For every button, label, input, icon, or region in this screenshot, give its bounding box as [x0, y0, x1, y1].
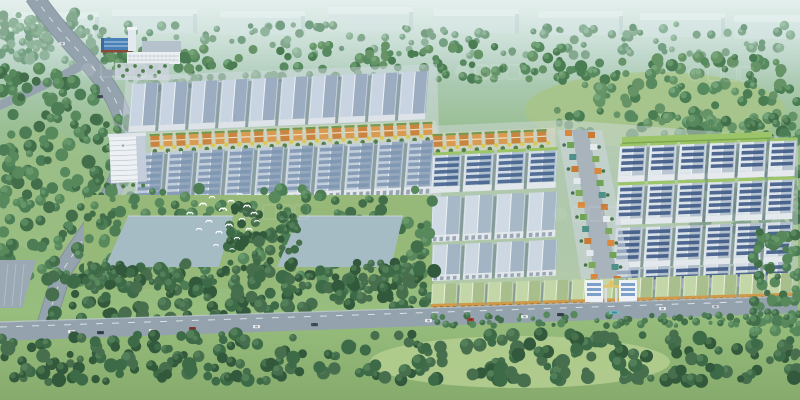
factory-tower-cap [127, 27, 137, 30]
tree [381, 41, 390, 50]
tree [269, 191, 281, 203]
tree-highlight [451, 323, 454, 326]
watermark-mark [553, 207, 567, 221]
tree-highlight [732, 88, 736, 92]
spine-building [588, 132, 595, 138]
tree [313, 361, 325, 373]
spine-tree [602, 169, 606, 173]
tree-highlight [750, 315, 756, 321]
tree-highlight [122, 352, 130, 360]
tree [439, 314, 445, 320]
tree-highlight [481, 67, 486, 72]
loading-door [396, 190, 400, 195]
bird [219, 208, 226, 210]
tree-highlight [660, 374, 668, 382]
car [521, 315, 528, 318]
tree [115, 264, 127, 276]
tree-highlight [310, 274, 313, 277]
tree [15, 12, 21, 18]
tree [378, 195, 388, 205]
tree-highlight [179, 301, 185, 307]
tree-highlight [435, 319, 438, 322]
tree [67, 275, 81, 289]
tree [339, 46, 344, 51]
bird [239, 218, 244, 220]
tree-highlight [54, 236, 59, 241]
distant-roof [328, 7, 413, 14]
tree-highlight [571, 332, 579, 340]
tree [129, 193, 140, 204]
tree [248, 23, 254, 29]
tree [781, 297, 791, 307]
tree [407, 330, 416, 339]
tree-highlight [434, 59, 439, 64]
spine-tree [571, 191, 575, 195]
tree-highlight [393, 265, 399, 271]
tree [102, 309, 111, 318]
tree-highlight [233, 266, 238, 271]
tree-highlight [380, 283, 385, 288]
spine-building [605, 228, 612, 234]
tree [675, 365, 686, 376]
warehouse-wall [128, 125, 155, 132]
tree-highlight [773, 120, 777, 124]
tree-highlight [38, 265, 43, 270]
tree-highlight [273, 366, 279, 372]
tree [508, 47, 516, 55]
tree-highlight [480, 320, 483, 323]
tree-highlight [653, 38, 656, 41]
tree-highlight [750, 309, 754, 313]
loading-door [484, 235, 488, 239]
tree-highlight [227, 342, 232, 347]
tree-highlight [250, 30, 253, 33]
tree-highlight [91, 202, 96, 207]
tree-highlight [660, 69, 663, 72]
spine-building [612, 264, 619, 270]
loading-door [478, 275, 482, 279]
tree [558, 28, 563, 33]
tree-highlight [18, 357, 23, 362]
tree-highlight [54, 78, 60, 84]
tree-highlight [83, 187, 89, 193]
warehouse-row [431, 240, 558, 282]
spine-building [584, 238, 591, 244]
tree-highlight [584, 28, 589, 33]
tree-highlight [400, 34, 403, 37]
tree [629, 24, 636, 31]
tree [24, 54, 35, 65]
car-window [255, 326, 258, 328]
tree [421, 38, 429, 46]
tree-highlight [648, 375, 652, 379]
tree-highlight [59, 89, 64, 94]
tree [434, 341, 447, 354]
tree-highlight [378, 260, 382, 264]
spine-building [574, 178, 581, 184]
bird [209, 196, 214, 198]
tree-highlight [716, 312, 720, 316]
tree-highlight [19, 49, 24, 54]
tree [249, 45, 258, 54]
distant-roof [220, 11, 305, 18]
tree-highlight [784, 315, 787, 318]
tree [316, 23, 325, 32]
tree [577, 68, 586, 77]
loading-door [452, 236, 456, 240]
spine-tree [614, 241, 618, 245]
loading-door [465, 275, 469, 279]
loading-door [419, 189, 423, 194]
tree [74, 89, 86, 101]
tree-highlight [558, 44, 563, 49]
spine-building [586, 250, 593, 256]
tree [36, 241, 47, 252]
bird [214, 244, 219, 245]
spine-building [597, 180, 604, 186]
tree-highlight [475, 29, 480, 34]
tree-highlight [245, 231, 249, 235]
tree-highlight [217, 269, 222, 274]
tree [178, 52, 190, 64]
tree-highlight [535, 42, 541, 48]
tree-highlight [43, 78, 48, 83]
tree-highlight [778, 341, 785, 348]
tree [99, 27, 107, 35]
tree-highlight [236, 360, 241, 365]
tree-highlight [771, 326, 777, 332]
tree [648, 110, 658, 120]
loading-door [510, 273, 514, 277]
loading-door [453, 276, 457, 280]
distant-side [193, 14, 197, 33]
tree-highlight [644, 119, 649, 124]
factory-blue-roof [101, 38, 132, 50]
tree-highlight [679, 83, 683, 87]
tree [265, 288, 276, 299]
tree-highlight [276, 184, 283, 191]
tree-highlight [6, 175, 12, 181]
tree [488, 315, 493, 320]
warehouse-wall [735, 214, 762, 221]
tree [603, 322, 610, 329]
tree-highlight [102, 262, 107, 267]
tree [277, 235, 284, 242]
tree [765, 264, 775, 274]
tree-highlight [36, 216, 42, 222]
tree-highlight [507, 329, 514, 336]
tree [557, 320, 565, 328]
tree-highlight [531, 316, 533, 318]
tree [328, 362, 340, 374]
tree [92, 24, 98, 30]
tree-highlight [712, 52, 719, 59]
tree-highlight [669, 47, 672, 50]
tree-highlight [680, 92, 687, 99]
tree-highlight [71, 121, 76, 126]
spine-building [571, 166, 578, 172]
tree-highlight [674, 324, 676, 326]
tree-highlight [100, 235, 106, 241]
tree [370, 331, 379, 340]
spine-building [576, 190, 583, 196]
tree-highlight [721, 318, 724, 321]
tree-highlight [399, 299, 405, 305]
tree [734, 322, 740, 328]
tree-highlight [266, 245, 272, 251]
distant-wall [328, 12, 413, 31]
tree [469, 321, 476, 328]
tree [411, 240, 424, 253]
tree-highlight [790, 230, 796, 236]
tree-highlight [373, 372, 378, 377]
spine-building [607, 240, 614, 246]
tree-highlight [595, 318, 598, 321]
warehouse-wall [338, 116, 365, 123]
gate-pylon [605, 288, 608, 302]
tree-highlight [191, 200, 195, 204]
warehouse-wall [643, 260, 670, 267]
warehouse-row [430, 192, 558, 243]
tree-highlight [679, 53, 684, 58]
tree [305, 20, 314, 29]
tree [419, 299, 427, 307]
factory-tower [128, 29, 136, 51]
tree-highlight [193, 336, 198, 341]
tree-highlight [77, 356, 81, 360]
tree-highlight [788, 250, 792, 254]
tree-highlight [443, 72, 447, 76]
tree [358, 273, 368, 283]
tree-highlight [666, 336, 671, 341]
tree [756, 228, 764, 236]
tree-highlight [171, 201, 176, 206]
tree-highlight [69, 302, 73, 306]
tree-highlight [747, 370, 752, 375]
tree-highlight [325, 352, 329, 356]
tree-highlight [200, 45, 205, 50]
tree-highlight [491, 67, 497, 73]
tree [759, 39, 765, 45]
tree-highlight [608, 31, 613, 36]
warehouse-wall [765, 213, 792, 220]
tree [276, 225, 284, 233]
tree [173, 63, 183, 73]
tree [554, 107, 561, 114]
tree [231, 203, 240, 212]
tree [128, 359, 138, 369]
tree [131, 203, 138, 210]
tree-highlight [774, 237, 779, 242]
loading-door [439, 237, 443, 241]
tree-highlight [758, 123, 762, 127]
tree-highlight [88, 34, 91, 37]
tree-highlight [252, 251, 255, 254]
tree-highlight [173, 354, 179, 360]
tree [285, 274, 295, 284]
tree [639, 331, 647, 339]
gate-dome [608, 280, 614, 286]
tree-highlight [346, 33, 350, 37]
warehouse-wall [673, 259, 700, 266]
tree [581, 50, 590, 59]
tree [19, 126, 32, 139]
tree [368, 267, 375, 274]
tree-highlight [608, 84, 613, 89]
tree-highlight [108, 336, 115, 343]
tree-highlight [52, 69, 56, 73]
tree [19, 72, 29, 82]
tree [711, 101, 719, 109]
tree [110, 342, 120, 352]
tree [495, 315, 501, 321]
distant-roof [734, 15, 800, 22]
tree-highlight [64, 104, 69, 109]
tree-highlight [344, 299, 350, 305]
tree [45, 287, 59, 301]
tree [66, 210, 78, 222]
warehouse-wall [767, 170, 794, 177]
tree-highlight [288, 258, 294, 264]
tree-highlight [215, 202, 221, 208]
tree [52, 373, 66, 387]
tree-highlight [214, 345, 221, 352]
tree-highlight [482, 31, 487, 36]
tree-highlight [253, 339, 259, 345]
car [557, 313, 564, 316]
tree-highlight [553, 48, 557, 52]
tree-highlight [242, 374, 250, 382]
spine-building [565, 130, 572, 136]
tree [388, 57, 396, 65]
tree-highlight [19, 39, 23, 43]
car [97, 331, 104, 334]
tree [203, 279, 212, 288]
warehouse-wall [703, 258, 730, 265]
loading-door [503, 234, 507, 238]
tree [512, 348, 525, 361]
tree [219, 336, 228, 345]
tree-highlight [21, 364, 28, 371]
gate-glass [621, 288, 635, 291]
tree-highlight [10, 373, 16, 379]
tree-highlight [474, 339, 481, 346]
tree-highlight [792, 286, 796, 290]
gate-glass [621, 283, 635, 286]
car-window [469, 319, 472, 321]
warehouse-wall [308, 117, 335, 124]
distant-roof [434, 9, 519, 16]
loading-door [426, 189, 430, 194]
tree [614, 340, 622, 348]
warehouse-wall [677, 173, 704, 180]
tree-highlight [705, 338, 712, 345]
car [120, 144, 126, 147]
tree [744, 41, 750, 47]
tree-highlight [1, 186, 8, 193]
tree-highlight [764, 315, 769, 320]
tree [365, 49, 374, 58]
tree [366, 295, 373, 302]
tree-highlight [47, 114, 52, 119]
tree-highlight [34, 63, 41, 70]
tree [586, 352, 596, 362]
tree-highlight [294, 226, 298, 230]
tree-highlight [534, 347, 540, 353]
tree [55, 148, 68, 161]
loading-door [446, 236, 450, 240]
loading-door [472, 275, 476, 279]
car-window [427, 320, 430, 322]
tree-highlight [732, 344, 738, 350]
tree [705, 363, 715, 373]
tree-highlight [414, 276, 418, 280]
tree-highlight [738, 97, 743, 102]
plaza-tree [163, 64, 167, 68]
warehouse-wall [278, 118, 305, 125]
tree-highlight [554, 60, 561, 67]
tree-highlight [708, 31, 713, 36]
tree [60, 167, 70, 177]
tree-highlight [27, 200, 32, 205]
tree-highlight [55, 194, 61, 200]
tree-highlight [728, 321, 732, 325]
tree [193, 183, 204, 194]
tree [439, 38, 448, 47]
tree [86, 37, 97, 48]
distant-roof [112, 9, 197, 16]
tree-highlight [670, 76, 675, 81]
tree [206, 206, 215, 215]
tree [237, 36, 245, 44]
tree-highlight [785, 365, 791, 371]
tree-highlight [265, 267, 271, 273]
car [311, 323, 318, 326]
tree [758, 89, 765, 96]
tree-highlight [693, 318, 697, 322]
tree [253, 236, 265, 248]
tree [173, 34, 179, 40]
car [659, 307, 666, 310]
tree-highlight [189, 49, 195, 55]
tree [275, 21, 285, 31]
tree [276, 47, 284, 55]
car [97, 95, 103, 98]
tree [421, 343, 431, 353]
tree-highlight [159, 298, 167, 306]
spine-tree [606, 193, 610, 197]
tree [17, 94, 25, 102]
bird [200, 203, 207, 205]
tree-highlight [239, 297, 245, 303]
tree [766, 356, 774, 364]
tree [702, 312, 708, 318]
tree [629, 113, 638, 122]
tree-highlight [675, 115, 679, 119]
tree [110, 196, 116, 202]
tree-highlight [443, 321, 447, 325]
car-window [99, 332, 102, 334]
tree [291, 22, 296, 27]
tree [235, 54, 243, 62]
tree-highlight [673, 316, 676, 319]
tree-highlight [208, 275, 211, 278]
tree [107, 280, 116, 289]
tree-highlight [467, 52, 471, 56]
loading-door [517, 273, 521, 277]
tree [237, 219, 246, 228]
tree [115, 359, 127, 371]
